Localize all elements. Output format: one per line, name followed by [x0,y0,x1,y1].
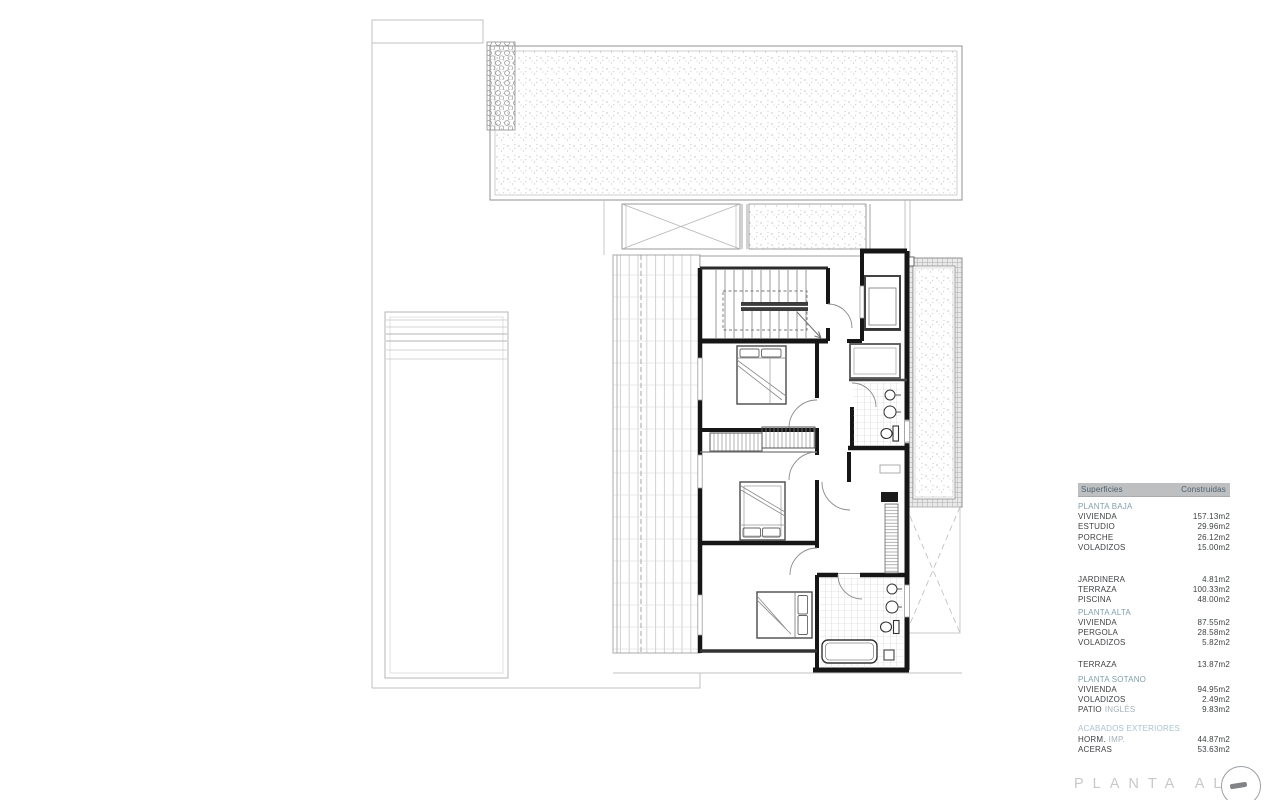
staircase [716,270,821,338]
deck-slats [613,255,700,653]
pool [385,312,508,678]
section-planta-baja: PLANTA BAJA [1078,502,1230,512]
voladizo-overhang [906,507,960,633]
section-acabados-exteriores: ACABADOS EXTERIORES [1078,724,1230,734]
table-row: PERGOLA 28.58m2 [1078,628,1230,638]
stair-direction-arrow [797,312,821,338]
surfaces-table-header: Superficies Construidas [1078,483,1230,496]
shower-enclosure [850,276,900,378]
section-planta-alta: PLANTA ALTA [1078,608,1230,618]
table-row: PISCINA 48.00m2 [1078,595,1230,605]
sink-icon [884,406,896,418]
table-row: VOLADIZOS 5.82m2 [1078,638,1230,648]
toilet-icon [881,429,892,439]
column [881,492,898,502]
bathroom-1 [853,383,910,446]
col-superficies: Superficies [1081,485,1123,494]
table-row: HORM.IMP. 44.87m2 [1078,735,1230,745]
logo-circle-icon [1221,766,1261,800]
bed-bedroom-2 [740,482,785,540]
col-construidas: Construidas [1181,485,1226,494]
dressing-area [880,465,900,573]
pergola-roof [487,42,962,200]
pool-steps [386,320,507,359]
table-row: VIVIENDA 157.13m2 [1078,512,1230,522]
sink-icon [887,584,897,594]
table-row: VOLADIZOS 15.00m2 [1078,543,1230,553]
table-row: TERRAZA 100.33m2 [1078,585,1230,595]
bathroom-2 [820,578,903,668]
table-row: VIVIENDA 94.95m2 [1078,685,1230,695]
shaft-hatch [885,504,898,573]
floorplan-sheet: Superficies Construidas PLANTA BAJA VIVI… [0,0,1280,800]
table-row: VIVIENDA 87.55m2 [1078,618,1230,628]
sink-icon [885,390,895,400]
table-row: VOLADIZOS 2.49m2 [1078,695,1230,705]
logo-mark-icon [1230,782,1248,790]
table-row: PORCHE 26.12m2 [1078,533,1230,543]
table-row: JARDINERA 4.81m2 [1078,575,1230,585]
toilet-icon [881,622,892,632]
table-row: TERRAZA 13.87m2 [1078,660,1230,670]
table-row: ESTUDIO 29.96m2 [1078,522,1230,532]
table-row: PATIOINGLÉS 9.83m2 [1078,705,1230,715]
surfaces-table: Superficies Construidas PLANTA BAJA VIVI… [1078,483,1230,755]
section-planta-sotano: PLANTA SOTANO [1078,675,1230,685]
sink-icon [886,601,898,613]
bed-bedroom-1 [737,346,786,404]
table-row: ACERAS 53.63m2 [1078,745,1230,755]
planter-pebbles [487,42,515,130]
bed-bedroom-3 [757,592,812,638]
bathtub-icon [822,640,877,663]
terrace-jardinera [905,257,962,507]
